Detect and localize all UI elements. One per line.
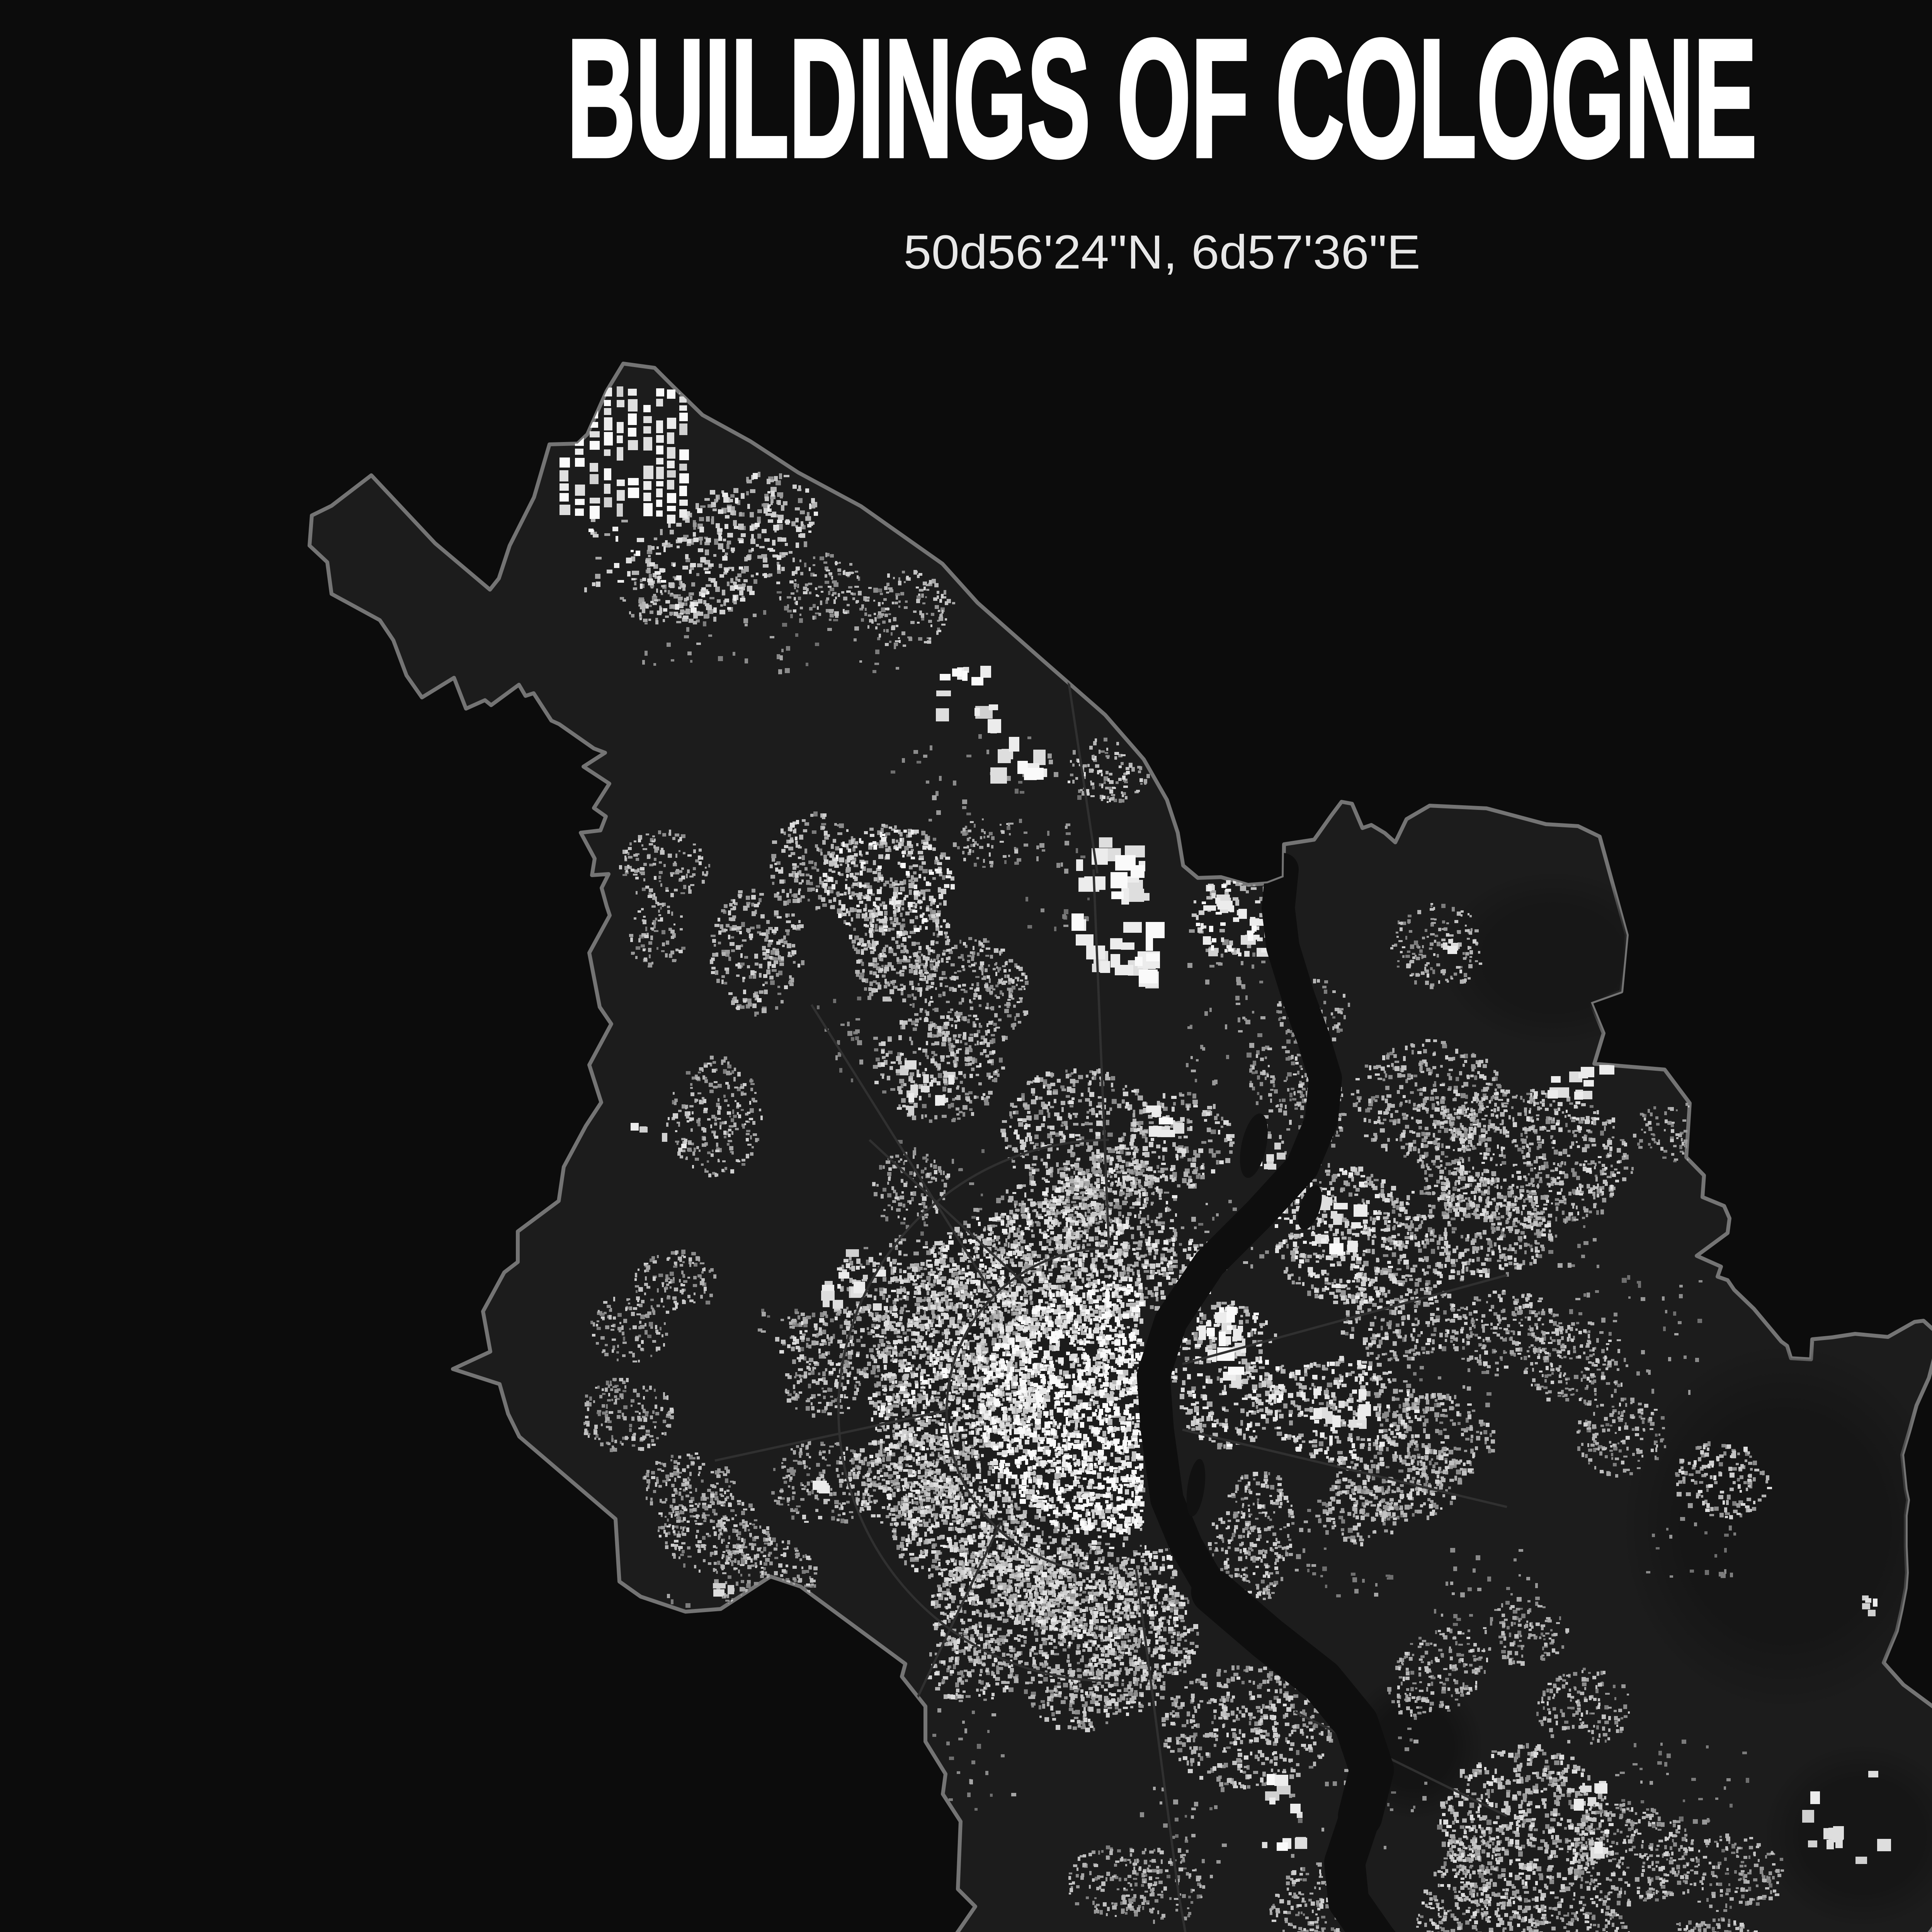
svg-text:BUILDINGS OF COLOGNE: BUILDINGS OF COLOGNE [567,5,1757,193]
svg-text:50d56'24"N, 6d57'36"E: 50d56'24"N, 6d57'36"E [903,226,1420,279]
